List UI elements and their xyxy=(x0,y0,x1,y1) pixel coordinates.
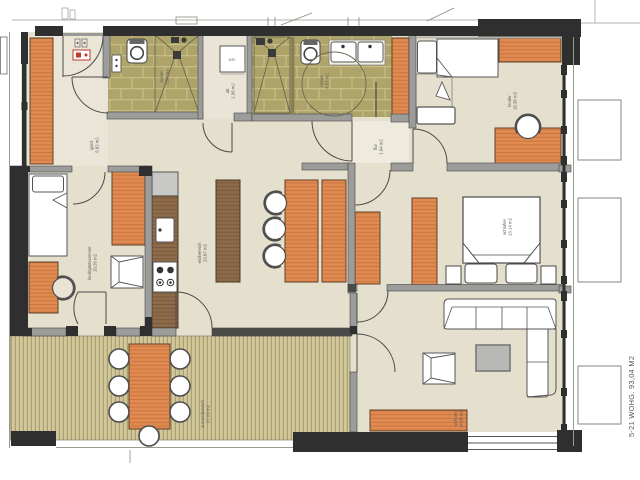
svg-text:13.14 m2: 13.14 m2 xyxy=(508,217,513,236)
svg-text:23.87 m2: 23.87 m2 xyxy=(203,243,208,262)
svg-text:3.90 m2: 3.90 m2 xyxy=(165,69,170,85)
svg-text:ab: ab xyxy=(225,88,230,93)
svg-text:14.08 m2: 14.08 m2 xyxy=(459,409,464,428)
svg-text:du/wc: du/wc xyxy=(159,71,164,83)
svg-text:kinder: kinder xyxy=(507,95,512,107)
svg-text:5.02 m2: 5.02 m2 xyxy=(95,137,100,153)
svg-text:kind/gästezimmer: kind/gästezimmer xyxy=(87,246,92,280)
svg-text:essbereich: essbereich xyxy=(197,242,202,263)
svg-text:du/wc: du/wc xyxy=(319,75,324,87)
svg-text:1.90 m2: 1.90 m2 xyxy=(231,83,236,99)
svg-text:gard.: gard. xyxy=(89,140,94,150)
svg-text:aussenbereich: aussenbereich xyxy=(200,399,205,428)
svg-text:flur: flur xyxy=(373,143,378,150)
svg-text:wm: wm xyxy=(229,57,236,62)
svg-text:wohnen: wohnen xyxy=(453,411,458,427)
svg-text:4.67 m2: 4.67 m2 xyxy=(325,73,330,89)
svg-text:10.26 m2: 10.26 m2 xyxy=(93,253,98,272)
svg-text:schlafen: schlafen xyxy=(502,218,507,235)
svg-text:27.03 m2: 27.03 m2 xyxy=(206,404,211,423)
svg-text:10.38 m2: 10.38 m2 xyxy=(513,91,518,110)
svg-text:5-21 WOHG. 93,04 M2: 5-21 WOHG. 93,04 M2 xyxy=(627,356,636,437)
svg-text:1.64 m2: 1.64 m2 xyxy=(379,139,384,155)
